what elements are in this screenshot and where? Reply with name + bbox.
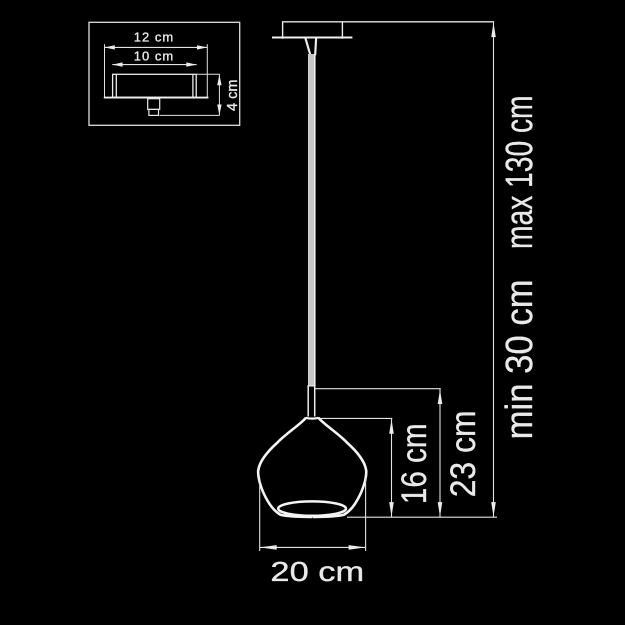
svg-text:16 cm: 16 cm [395,423,434,504]
svg-text:10 cm: 10 cm [134,49,174,64]
svg-text:20 cm: 20 cm [270,556,364,587]
svg-text:12 cm: 12 cm [134,30,174,45]
svg-text:min 30 cm: min 30 cm [497,279,540,439]
svg-text:max 130 cm: max 130 cm [499,95,541,248]
svg-text:23 cm: 23 cm [444,410,483,497]
svg-text:4 cm: 4 cm [225,80,241,111]
